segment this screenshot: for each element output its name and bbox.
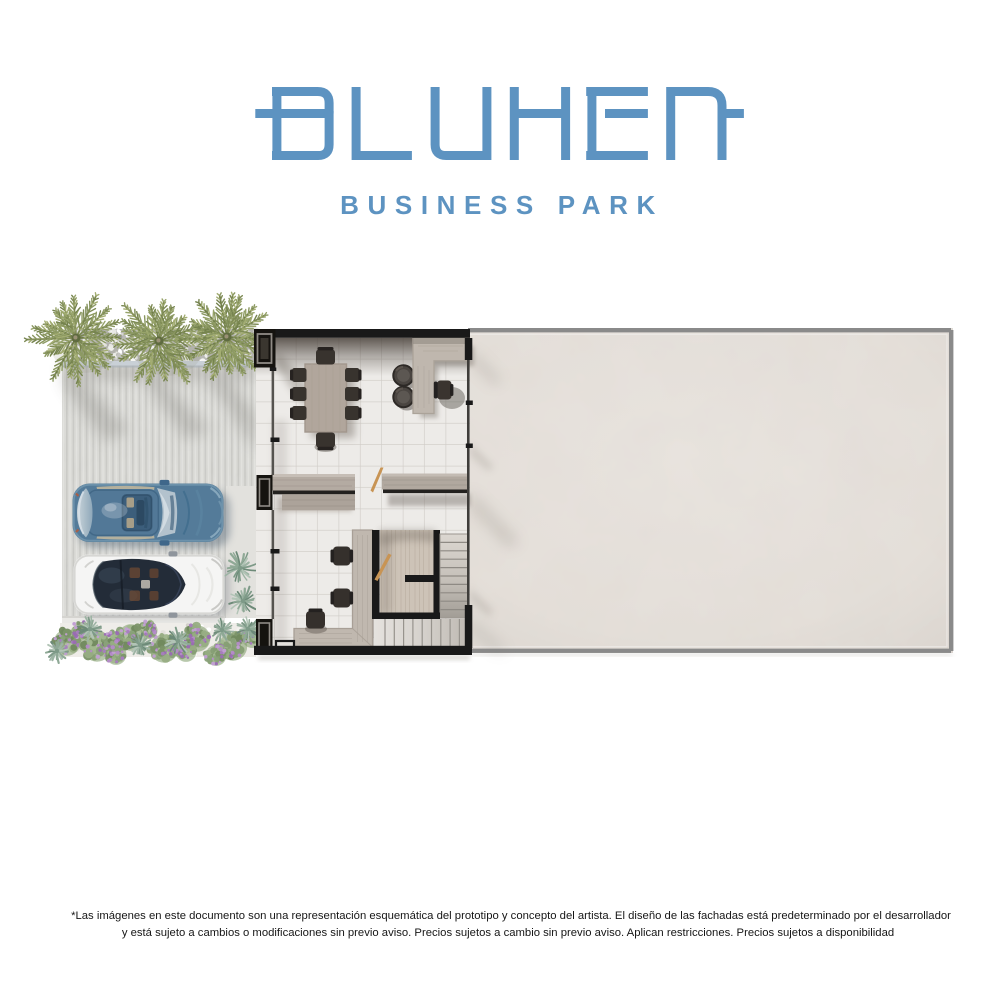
svg-text:y está sujeto a cambios o modi: y está sujeto a cambios o modificaciones… xyxy=(122,927,894,939)
svg-text:BUSINESS PARK: BUSINESS PARK xyxy=(340,190,664,220)
svg-text:*Las imágenes en este document: *Las imágenes en este documento son una … xyxy=(71,910,951,922)
